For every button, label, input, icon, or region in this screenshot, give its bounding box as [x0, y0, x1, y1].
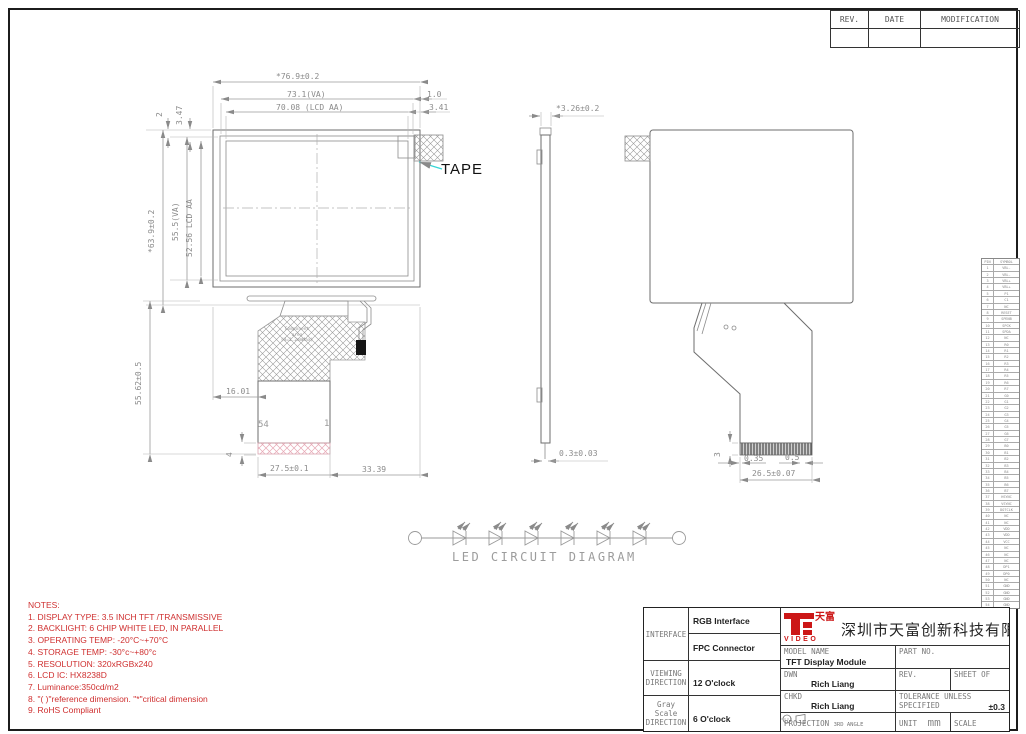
dwn-cell: DWN Rich Liang	[781, 669, 896, 691]
dim-total-height: *63.9±0.2	[147, 210, 156, 253]
note-item: 5. RESOLUTION: 320xRGBx240	[28, 659, 223, 671]
note-item: 6. LCD IC: HX8238D	[28, 670, 223, 682]
dim-connector-h: 3	[713, 452, 722, 457]
sheet-cell: SHEET OF	[951, 669, 1009, 691]
backlight-connector	[356, 340, 366, 355]
dim-va-width: 73.1(VA)	[287, 90, 326, 99]
tape-front	[414, 135, 443, 161]
part-no-cell: PART NO.	[896, 646, 1009, 669]
rev-header: REV.	[831, 11, 869, 29]
note-item: 4. STORAGE TEMP: -30°c~+80°c	[28, 647, 223, 659]
rev-cell: REV.	[896, 669, 951, 691]
fpc-tail-back	[694, 303, 812, 443]
projection-cell: PROJECTION 3RD ANGLE	[781, 713, 896, 731]
tape-back	[625, 136, 650, 161]
scale-cell: SCALE 1:1	[951, 713, 1009, 731]
chkd-cell: CHKD Rich Liang	[781, 691, 896, 713]
unit-cell: UNIT mm	[896, 713, 951, 731]
led-circuit	[409, 522, 686, 545]
logo-bar	[791, 613, 800, 635]
modification-header: MODIFICATION	[921, 11, 1019, 29]
dim-pitch-a: 0.35	[744, 454, 763, 463]
led-symbol	[633, 522, 650, 545]
tape-label: TAPE	[441, 161, 483, 178]
dim-connector-w: 26.5±0.07	[752, 469, 795, 478]
logo-video-text: VIDEO	[784, 636, 818, 643]
logo-block	[803, 622, 812, 628]
fpc-tail	[258, 381, 330, 443]
led-symbol	[453, 522, 470, 545]
model-label: MODEL NAME	[781, 646, 895, 656]
pin-table: PIN SYMBOL 1VBL-2VBL-3VBL+4VBL+5P16C17NC…	[981, 258, 1020, 609]
date-header: DATE	[869, 11, 921, 29]
note-item: 1. DISPLAY TYPE: 3.5 INCH TFT /TRANSMISS…	[28, 612, 223, 624]
model-cell: MODEL NAME TFT Display Module	[781, 646, 896, 669]
dim-aa-height: 52.56 LCD AA	[185, 199, 194, 257]
tolerance-cell: TOLERANCE UNLESS SPECIFIED ±0.3	[896, 691, 1009, 713]
tolerance-value: ±0.3	[989, 691, 1009, 712]
date-cell-empty	[869, 29, 921, 47]
viewing-direction-label: VIEWING DIRECTION	[644, 661, 689, 696]
note-item: 3. OPERATING TEMP: -20°C~+70°C	[28, 635, 223, 647]
part-no-label: PART NO.	[896, 646, 1009, 656]
dim-thickness: *3.26±0.2	[556, 104, 599, 113]
dim-stiffener-height: 4	[225, 452, 234, 457]
front-view	[213, 130, 443, 454]
interface-value-2: FPC Connector	[689, 634, 781, 661]
dim-fpc-width: 27.5±0.1	[270, 464, 309, 473]
scale-label: SCALE	[951, 719, 977, 728]
dwn-label: DWN	[781, 669, 895, 679]
tape-pointer-arrow	[419, 162, 442, 169]
chkd-value: Rich Liang	[781, 701, 895, 711]
third-angle-projection-icon	[781, 713, 807, 725]
led-symbol	[489, 522, 506, 545]
component-area-note: Component area (H=1.2mmMax)	[260, 327, 334, 344]
back-view	[625, 130, 853, 483]
engineering-drawing-sheet: *76.9±0.2 73.1(VA) 70.08 (LCD AA) 1.0 3.…	[0, 0, 1026, 734]
title-block: INTERFACE RGB Interface FPC Connector VI…	[643, 607, 1010, 732]
dim-aa-width: 70.08 (LCD AA)	[276, 103, 343, 112]
led-symbol	[525, 522, 542, 545]
pin-label-1: 1	[324, 419, 329, 429]
dim-fpc-thickness: 0.3±0.03	[559, 449, 598, 458]
component-area	[258, 316, 365, 381]
chkd-label: CHKD	[781, 691, 895, 701]
note-item: 8. "( )"reference dimension. "*"critical…	[28, 694, 223, 706]
led-symbol	[561, 522, 578, 545]
led-circuit-title: LED CIRCUIT DIAGRAM	[452, 550, 637, 564]
rev-cell-empty	[831, 29, 869, 47]
dim-va-height: 55.5(VA)	[171, 202, 180, 241]
dim-edge-right-1: 1.0	[427, 90, 441, 99]
notes-title: NOTES:	[28, 600, 223, 612]
interface-value-1: RGB Interface	[689, 608, 781, 634]
revision-table: REV. DATE MODIFICATION	[830, 10, 1020, 48]
unit-label: UNIT	[896, 719, 917, 728]
gray-scale-direction-label: Gray Scale DIRECTION	[644, 696, 689, 731]
side-view	[529, 112, 608, 461]
dim-fpc-offset-right: 33.39	[362, 465, 386, 474]
led-terminal-right	[673, 532, 686, 545]
dim-edge-top-1: 2	[155, 112, 164, 117]
note-item: 9. RoHS Compliant	[28, 705, 223, 717]
interface-label: INTERFACE	[644, 608, 689, 661]
tolerance-label: TOLERANCE UNLESS SPECIFIED	[896, 691, 971, 710]
unit-value: mm	[922, 716, 941, 729]
company-header-cell: 天富 VIDEO 深圳市天富创新科技有限公司	[781, 608, 1009, 646]
dwn-value: Rich Liang	[781, 679, 895, 689]
pin-label-54: 54	[258, 420, 269, 430]
gray-scale-direction-value: 6 O'clock	[689, 696, 781, 731]
scale-value: 1:1	[951, 730, 1009, 731]
note-item: 7. Luminance:350cd/m2	[28, 682, 223, 694]
model-value: TFT Display Module	[781, 656, 895, 667]
note-item: 2. BACKLIGHT: 6 CHIP WHITE LED, IN PARAL…	[28, 623, 223, 635]
fpc-stiffener	[258, 443, 330, 454]
dim-pitch-b: 0.5	[785, 453, 799, 462]
led-terminal-left	[409, 532, 422, 545]
logo-chinese-text: 天富	[815, 612, 835, 623]
modification-cell-empty	[921, 29, 1019, 47]
viewing-direction-value: 12 O'clock	[689, 661, 781, 696]
projection-value: 3RD ANGLE	[834, 722, 864, 728]
led-symbol	[597, 522, 614, 545]
dim-edge-top-2: 3.47	[175, 106, 184, 125]
company-name: 深圳市天富创新科技有限公司	[841, 619, 1009, 640]
notes-block: NOTES: 1. DISPLAY TYPE: 3.5 INCH TFT /TR…	[28, 600, 223, 717]
dim-edge-right-2: 3.41	[429, 103, 448, 112]
dim-module-fpc-height: 55.62±0.5	[134, 362, 143, 405]
dim-total-width: *76.9±0.2	[276, 72, 319, 81]
company-logo: 天富 VIDEO	[784, 612, 836, 644]
logo-block	[803, 630, 812, 635]
dim-fpc-offset-left: 16.01	[226, 387, 250, 396]
